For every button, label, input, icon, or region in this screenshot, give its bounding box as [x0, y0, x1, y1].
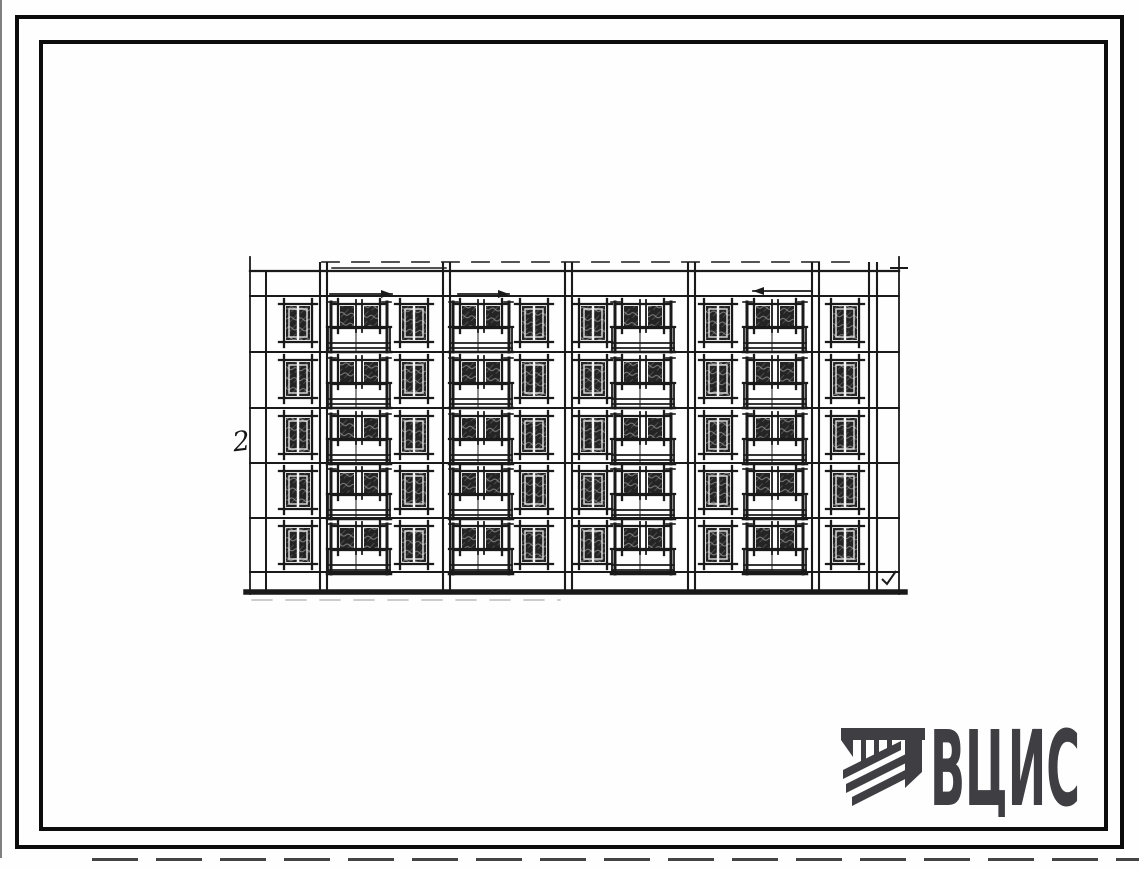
left-margin-annotation: 2 [231, 425, 259, 464]
vcis-logo: ВЦИС [830, 715, 1096, 817]
scan-edge-artifact-left [0, 0, 2, 858]
scan-edge-artifact-bottom [92, 858, 1139, 861]
facade-drawing-area [228, 248, 920, 610]
facade-elevation-drawing [228, 248, 920, 610]
vcis-logo-text: ВЦИС [930, 715, 1080, 817]
drawing-sheet: 2 ВЦИС [0, 0, 1139, 869]
vcis-logo-icon [841, 728, 925, 806]
